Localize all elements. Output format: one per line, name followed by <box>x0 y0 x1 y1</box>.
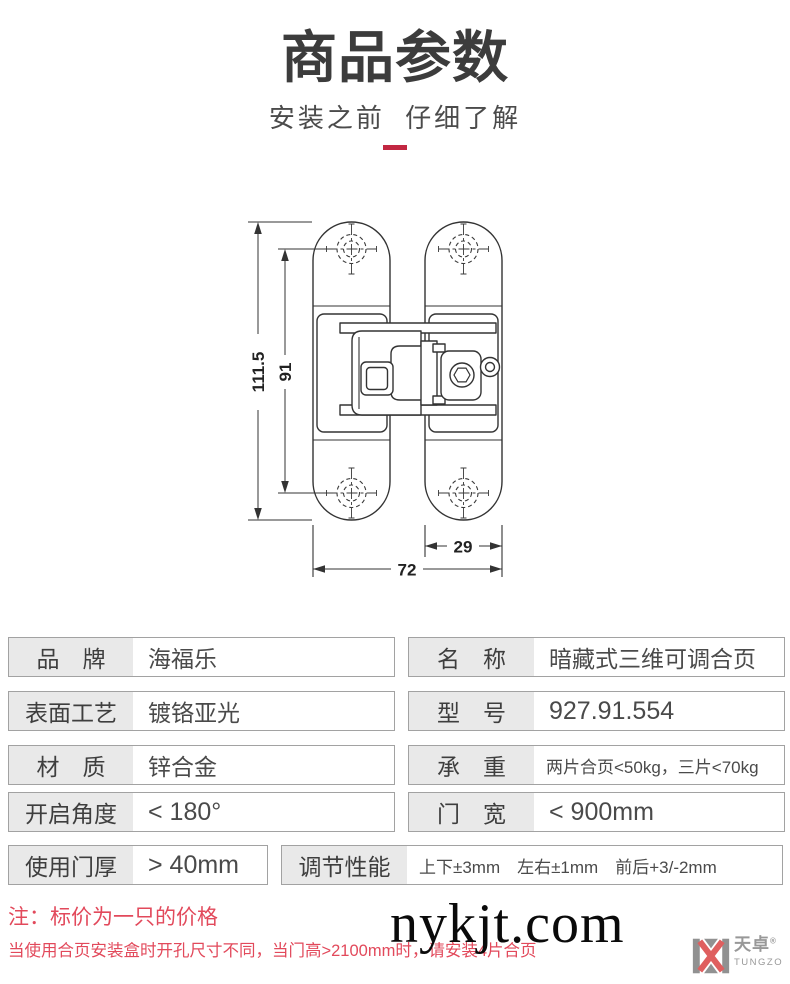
spec-row-name: 名 称 暗藏式三维可调合页 <box>408 637 785 677</box>
accent-bar <box>383 145 407 150</box>
spec-row-door-thickness: 使用门厚 > 40mm <box>8 845 268 885</box>
spec-label-brand: 品 牌 <box>9 638 133 676</box>
brand-logo: 天卓® TUNGZO <box>692 936 783 976</box>
dim-hole-spacing: 91 <box>276 363 295 382</box>
registered-mark: ® <box>770 936 777 945</box>
spec-value-brand: 海福乐 <box>133 638 394 676</box>
spec-value-door-thickness: > 40mm <box>133 846 267 884</box>
spec-value-opening-angle: < 180° <box>133 793 394 831</box>
dim-plate-width: 29 <box>454 538 473 557</box>
spec-value-load-capacity: 两片合页<50kg，三片<70kg <box>534 746 784 784</box>
dim-total-width: 72 <box>398 561 417 580</box>
brand-name-latin: TUNGZO <box>734 957 783 968</box>
brand-name: 天卓® <box>734 936 783 955</box>
spec-value-surface: 镀铬亚光 <box>133 692 394 730</box>
price-note: 注：标价为一只的价格 <box>8 901 218 931</box>
tungzo-logo-icon <box>692 936 730 976</box>
spec-label-adjustability: 调节性能 <box>282 846 407 884</box>
spec-row-adjustability: 调节性能 上下±3mm 左右±1mm 前后+3/-2mm <box>281 845 783 885</box>
page-title: 商品参数 <box>0 26 790 90</box>
spec-label-opening-angle: 开启角度 <box>9 793 133 831</box>
spec-value-door-width: < 900mm <box>534 793 784 831</box>
product-parameters-page: 商品参数 安装之前 仔细了解 <box>0 0 790 984</box>
spec-label-load-capacity: 承 重 <box>409 746 534 784</box>
spec-row-model: 型 号 927.91.554 <box>408 691 785 731</box>
spec-row-load-capacity: 承 重 两片合页<50kg，三片<70kg <box>408 745 785 785</box>
spec-label-surface: 表面工艺 <box>9 692 133 730</box>
brand-text: 天卓® TUNGZO <box>734 936 783 968</box>
spec-row-door-width: 门 宽 < 900mm <box>408 792 785 832</box>
spec-value-name: 暗藏式三维可调合页 <box>534 638 784 676</box>
spec-label-model: 型 号 <box>409 692 534 730</box>
hinge-drawing-svg: 111.5 91 29 72 <box>240 205 540 595</box>
spec-label-material: 材 质 <box>9 746 133 784</box>
spec-row-opening-angle: 开启角度 < 180° <box>8 792 395 832</box>
spec-label-door-thickness: 使用门厚 <box>9 846 133 884</box>
spec-value-adjustability: 上下±3mm 左右±1mm 前后+3/-2mm <box>407 846 782 884</box>
spec-row-brand: 品 牌 海福乐 <box>8 637 395 677</box>
spec-row-surface: 表面工艺 镀铬亚光 <box>8 691 395 731</box>
spec-value-material: 锌合金 <box>133 746 394 784</box>
spec-label-name: 名 称 <box>409 638 534 676</box>
dim-total-height: 111.5 <box>249 352 268 393</box>
page-subtitle: 安装之前 仔细了解 <box>0 98 790 135</box>
header: 商品参数 安装之前 仔细了解 <box>0 0 790 150</box>
spec-row-material: 材 质 锌合金 <box>8 745 395 785</box>
watermark: nykjt.com <box>390 894 625 956</box>
spec-label-door-width: 门 宽 <box>409 793 534 831</box>
spec-value-model: 927.91.554 <box>534 692 784 730</box>
hinge-technical-drawing: 111.5 91 29 72 <box>240 205 540 595</box>
brand-name-cn: 天卓 <box>734 935 770 954</box>
